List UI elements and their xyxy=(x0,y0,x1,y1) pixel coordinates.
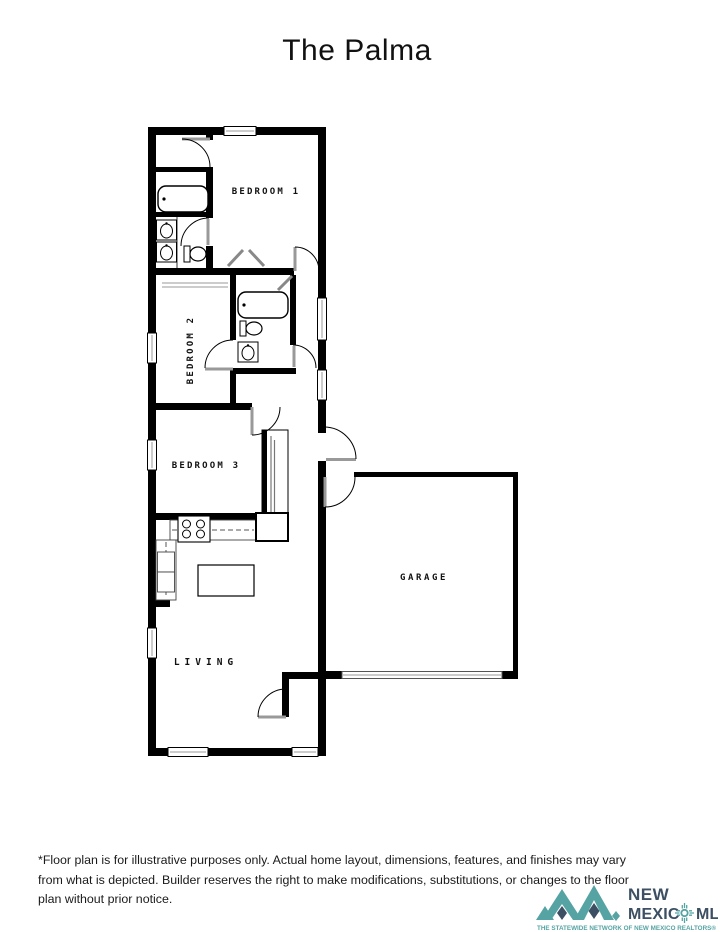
logo-line2-right: MLS xyxy=(696,906,718,923)
refrigerator-icon xyxy=(256,513,288,541)
window xyxy=(148,628,157,658)
door-arc xyxy=(205,340,233,369)
door-arc xyxy=(295,247,319,271)
room-label-bedroom1: BEDROOM 1 xyxy=(232,187,301,197)
closet-shelf-lines xyxy=(162,283,228,287)
interior-walls xyxy=(156,135,326,717)
door-arc xyxy=(258,689,286,717)
bath2-fixtures xyxy=(238,292,288,362)
door-arc xyxy=(324,427,356,460)
mountains-icon xyxy=(536,885,620,921)
window xyxy=(224,127,256,136)
room-label-bedroom2: BEDROOM 2 xyxy=(186,316,196,385)
room-label-bedroom3: BEDROOM 3 xyxy=(172,461,241,471)
window xyxy=(168,748,208,757)
window xyxy=(292,748,318,757)
kitchen-island xyxy=(198,565,254,596)
door-arc xyxy=(182,139,210,167)
window xyxy=(318,370,327,400)
sink-icon xyxy=(238,342,258,362)
logo-line1: NEW xyxy=(628,885,670,904)
kitchen-fixtures xyxy=(156,513,288,600)
logo-line2-left: MEXIC xyxy=(628,906,680,923)
room-label-garage: GARAGE xyxy=(400,573,448,583)
doors xyxy=(181,139,356,717)
toilet-icon xyxy=(184,246,206,262)
sink-icon xyxy=(157,220,177,240)
door-arc xyxy=(181,218,209,246)
window xyxy=(148,440,157,470)
room-label-living: LIVING xyxy=(174,657,238,668)
floor-plan: BEDROOM 1 BEDROOM 2 BEDROOM 3 GARAGE LIV… xyxy=(0,0,720,932)
door-arc xyxy=(325,477,355,507)
window xyxy=(148,333,157,363)
page: The Palma xyxy=(0,0,720,932)
door-arc xyxy=(293,345,316,368)
garage-door xyxy=(342,672,502,679)
stove-icon xyxy=(178,516,210,542)
sink-icon xyxy=(157,242,177,262)
toilet-icon xyxy=(240,321,262,336)
bath1-fixtures xyxy=(157,186,209,268)
closet-sliding-doors xyxy=(262,430,288,515)
new-mexico-mls-logo: NEW MEXIC MLS THE STATEWIDE NETWORK OF N… xyxy=(536,880,718,932)
window xyxy=(318,298,327,340)
logo-tagline: THE STATEWIDE NETWORK OF NEW MEXICO REAL… xyxy=(537,925,717,932)
